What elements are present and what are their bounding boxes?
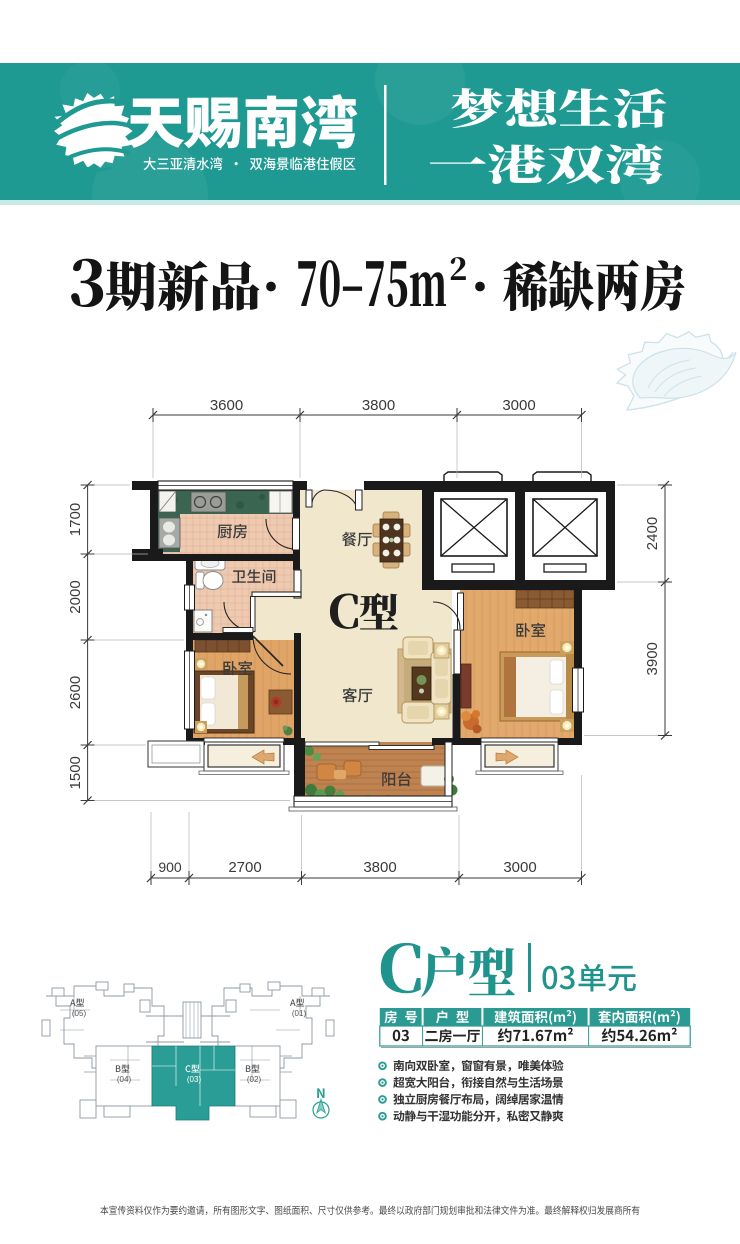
svg-text:(02): (02)	[247, 1075, 262, 1084]
svg-text:2400: 2400	[644, 517, 661, 550]
svg-text:3800: 3800	[362, 397, 395, 414]
svg-text:2700: 2700	[228, 859, 261, 876]
svg-text:3000: 3000	[503, 859, 536, 876]
svg-text:2000: 2000	[67, 580, 84, 613]
svg-text:(05): (05)	[72, 1009, 87, 1018]
svg-text:2600: 2600	[67, 676, 84, 709]
svg-text:1700: 1700	[67, 503, 84, 536]
svg-text:3900: 3900	[644, 642, 661, 675]
svg-text:3800: 3800	[363, 859, 396, 876]
svg-text:900: 900	[158, 859, 182, 875]
svg-text:3000: 3000	[502, 397, 535, 414]
svg-text:(04): (04)	[117, 1075, 132, 1084]
svg-text:1500: 1500	[67, 756, 84, 789]
svg-text:3600: 3600	[210, 397, 243, 414]
svg-text:(01): (01)	[292, 1009, 307, 1018]
svg-text:(03): (03)	[187, 1075, 202, 1084]
